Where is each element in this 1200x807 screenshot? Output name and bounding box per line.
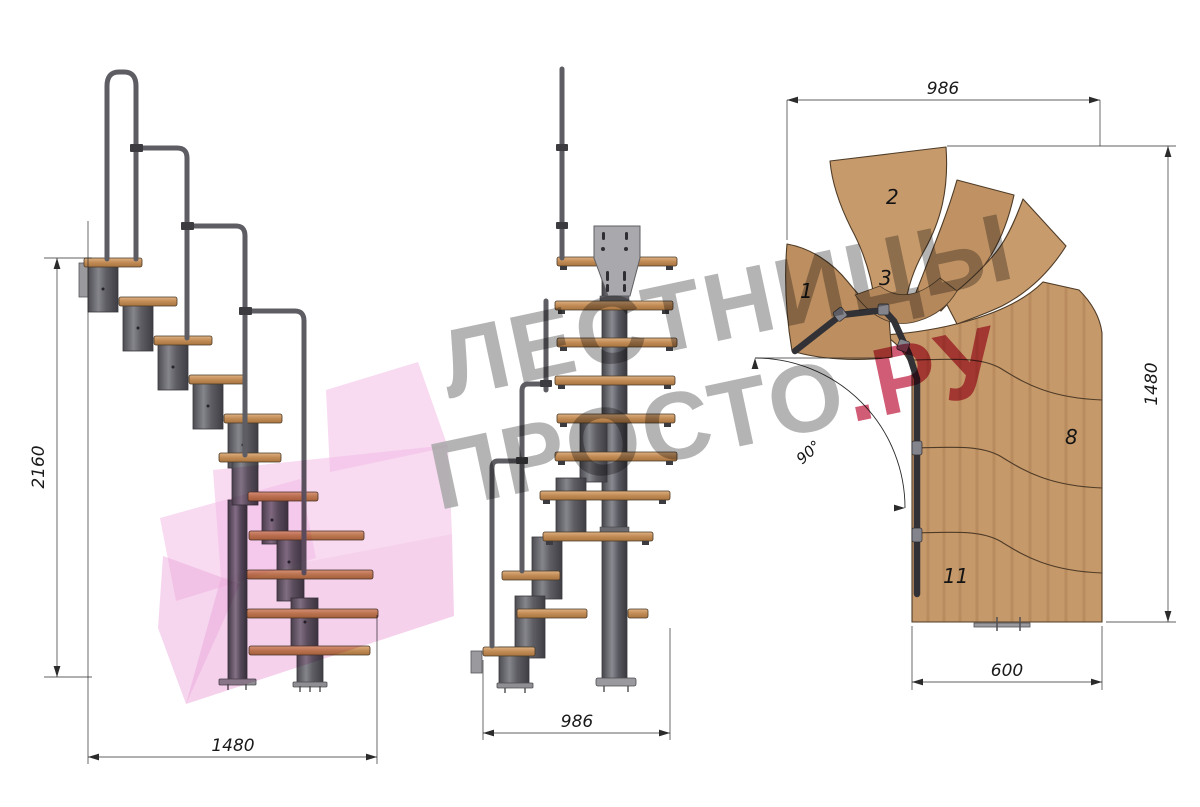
dim-label-height: 2160 xyxy=(29,445,49,488)
front-elevation-view: 986 xyxy=(471,69,677,740)
staircase-drawing-canvas: 2160 1480 xyxy=(0,0,1200,807)
dim-label-plan-top: 986 xyxy=(927,79,960,99)
front-treads xyxy=(483,257,677,656)
front-column-base xyxy=(596,678,636,686)
step-number-1: 1 xyxy=(800,279,813,303)
step-number-3: 3 xyxy=(879,266,892,290)
step-number-11: 11 xyxy=(943,564,968,588)
side-elevation-view: 2160 1480 xyxy=(29,72,378,764)
angle-label: 90° xyxy=(793,437,825,468)
front-module-flange xyxy=(497,683,533,688)
top-mount-plate xyxy=(594,226,640,296)
arc-arrows xyxy=(752,358,905,511)
column-base-plate xyxy=(219,679,256,685)
step-number-2: 2 xyxy=(886,185,899,209)
dim-label-plan-bottom: 600 xyxy=(991,661,1023,681)
dim-label-front-width: 986 xyxy=(561,712,594,732)
turn-angle-arc xyxy=(755,358,905,508)
support-column xyxy=(228,500,247,680)
technical-drawing: 2160 1480 xyxy=(0,0,1200,807)
front-wall-bracket xyxy=(471,651,482,673)
step-number-8: 8 xyxy=(1065,425,1078,449)
rail-clamps xyxy=(130,144,252,315)
floor-bracket xyxy=(974,623,1030,627)
stair-modules xyxy=(88,266,323,683)
top-plan-view: 90° 1 2 3 8 11 986 1480 600 xyxy=(752,79,1176,690)
dim-label-plan-right: 1480 xyxy=(1142,362,1162,405)
side-dim-arrows xyxy=(54,258,377,760)
dim-label-length: 1480 xyxy=(211,736,254,756)
